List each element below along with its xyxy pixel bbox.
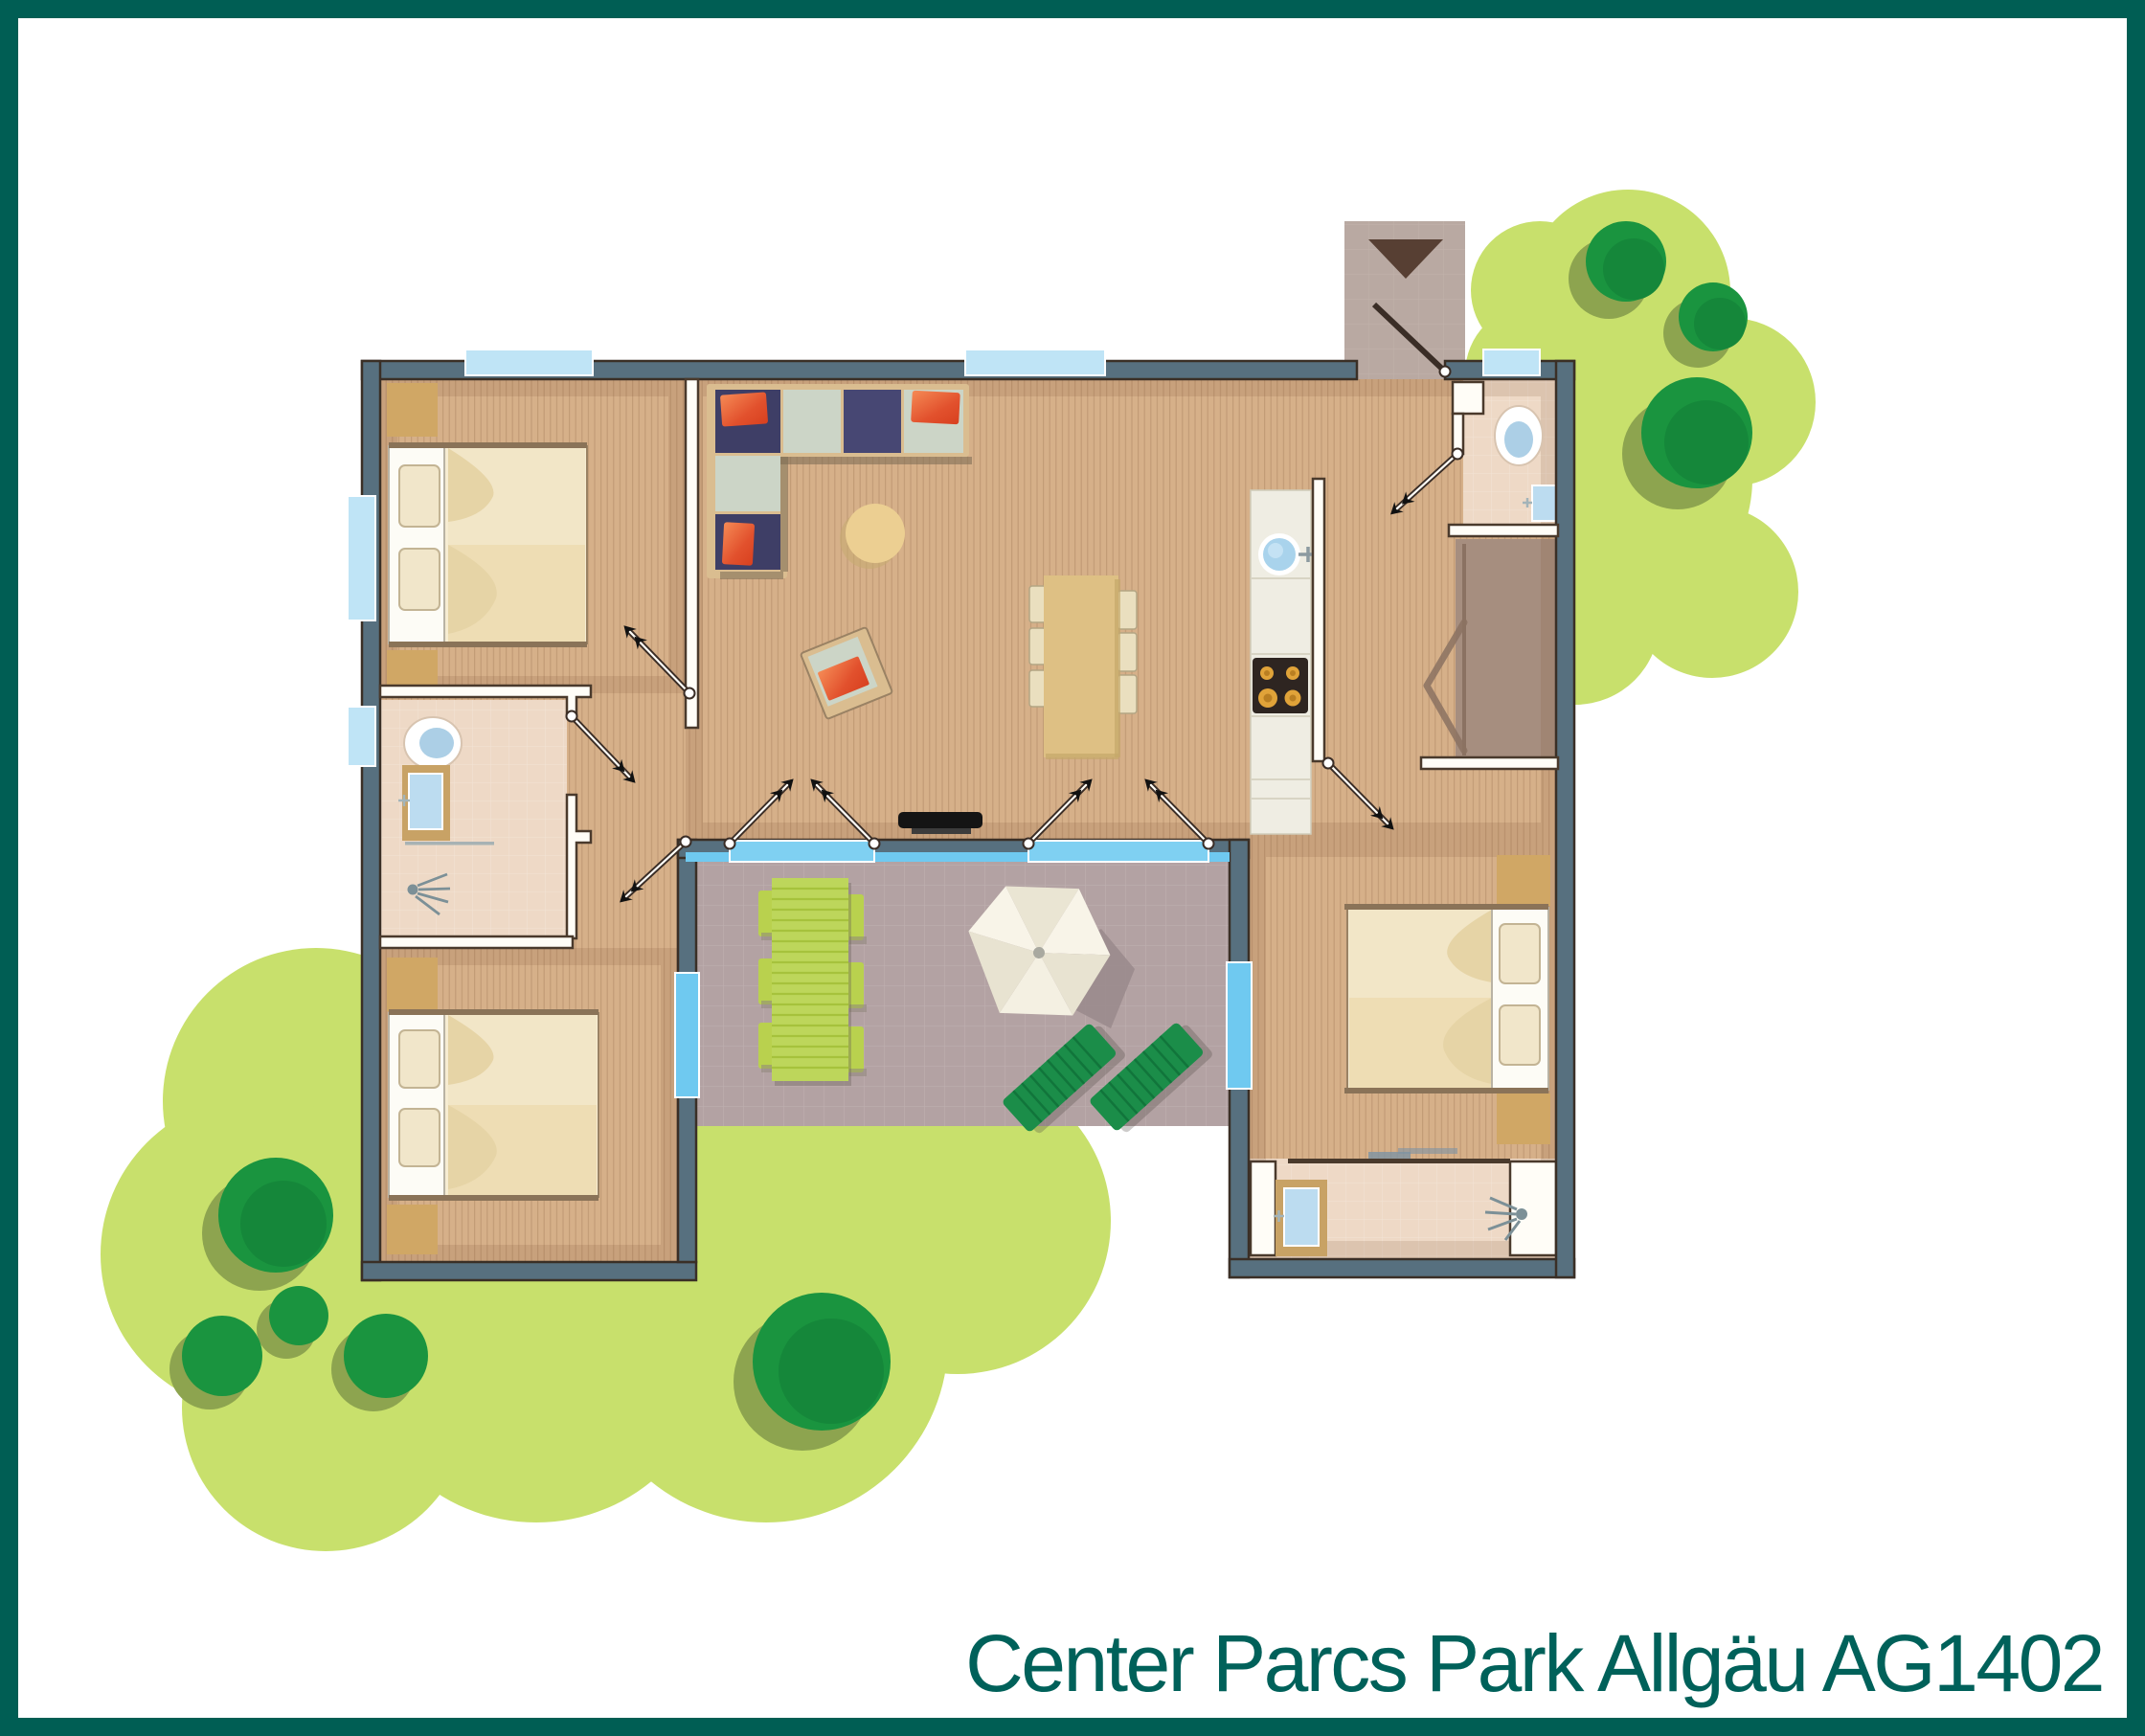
- svg-text:Center Parcs Park Allgäu AG140: Center Parcs Park Allgäu AG1402: [965, 1618, 2103, 1708]
